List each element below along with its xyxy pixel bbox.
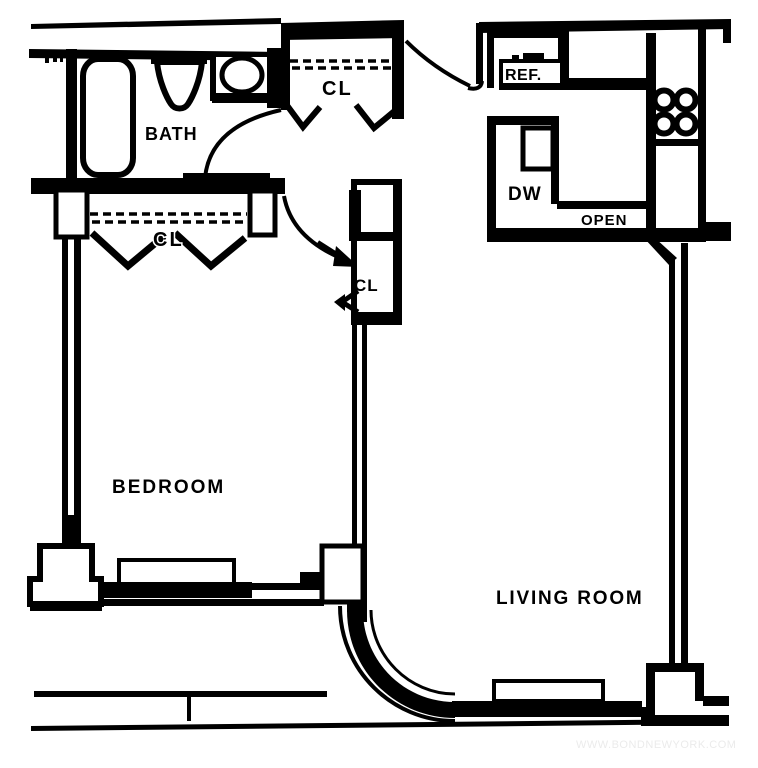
svg-text:BEDROOM: BEDROOM [112, 477, 225, 498]
svg-text:REF.: REF. [505, 67, 542, 84]
svg-text:CL: CL [322, 78, 353, 100]
svg-text:BATH: BATH [145, 124, 198, 144]
svg-text:WWW.BONDNEWYORK.COM: WWW.BONDNEWYORK.COM [576, 739, 736, 751]
svg-text:CL: CL [153, 229, 184, 251]
svg-text:DW: DW [508, 184, 542, 205]
svg-text:OPEN: OPEN [581, 212, 628, 229]
svg-text:LIVING ROOM: LIVING ROOM [496, 588, 644, 609]
